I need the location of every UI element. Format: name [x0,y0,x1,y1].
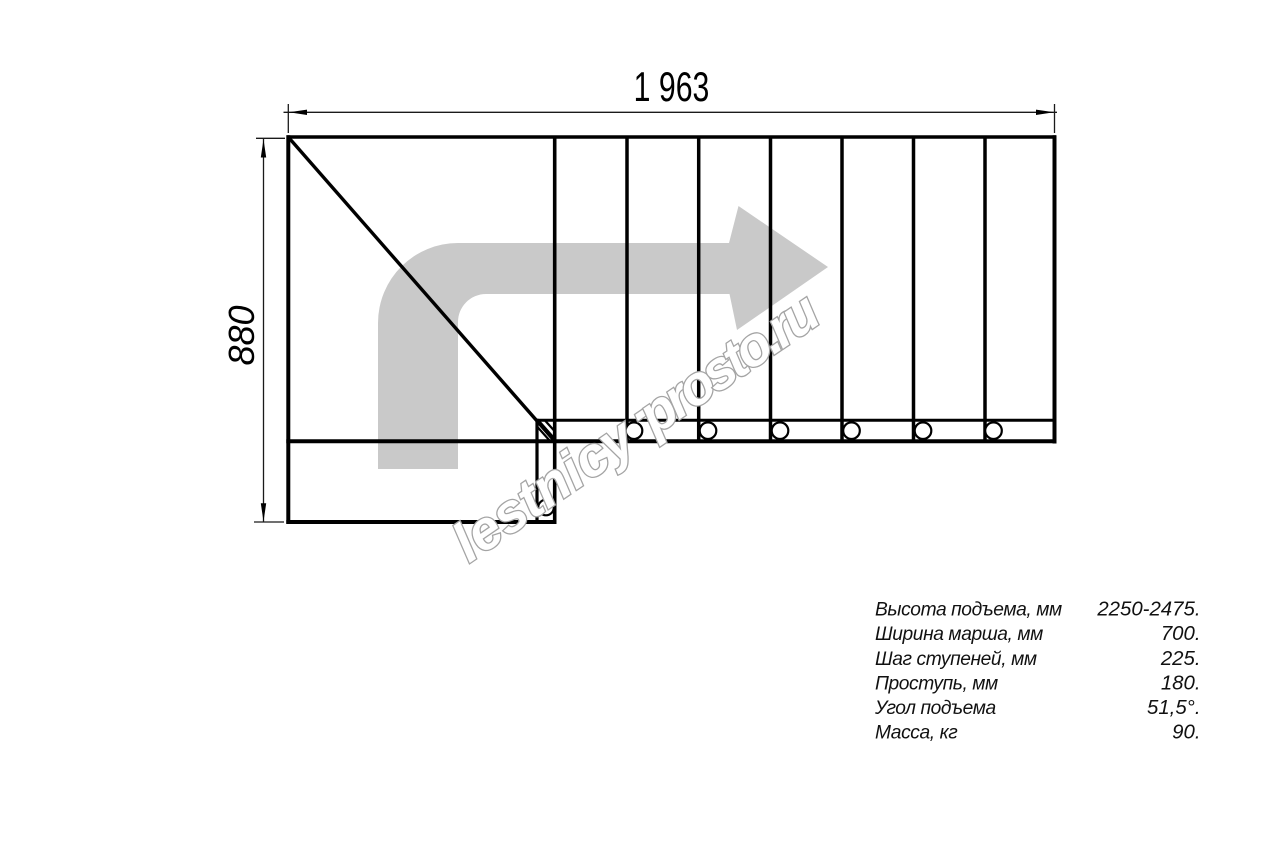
svg-text:51,5°.: 51,5°. [1147,697,1201,719]
svg-text:Проступь, мм: Проступь, мм [875,673,998,694]
svg-text:180.: 180. [1161,672,1201,694]
svg-text:90.: 90. [1172,722,1200,744]
svg-text:Высота подъема, мм: Высота подъема, мм [875,600,1062,621]
svg-text:Ширина марша, мм: Ширина марша, мм [875,624,1043,645]
svg-text:880: 880 [221,305,262,365]
svg-text:Масса, кг: Масса, кг [875,723,958,744]
svg-text:Шаг ступеней, мм: Шаг ступеней, мм [875,649,1037,670]
svg-text:700.: 700. [1161,623,1201,645]
svg-text:225.: 225. [1160,648,1201,670]
svg-text:2250-2475.: 2250-2475. [1096,599,1200,621]
svg-text:Угол подъема: Угол подъема [874,698,996,719]
svg-text:1 963: 1 963 [634,63,710,110]
